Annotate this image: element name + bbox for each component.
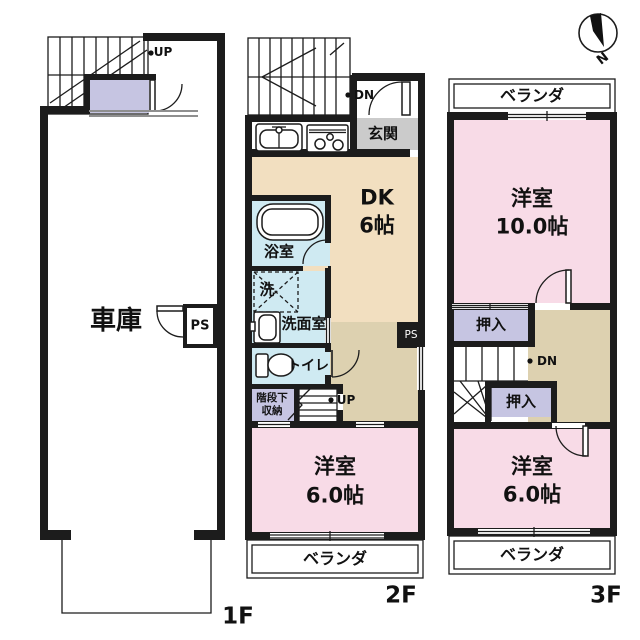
floor2-label: 2F: [385, 585, 417, 608]
door-swing-arc: [155, 84, 182, 111]
garage-label: 車庫: [90, 308, 142, 334]
closet1-label: 押入: [476, 318, 506, 333]
floor3-label: 3F: [590, 585, 622, 608]
entrance-label: 玄関: [368, 127, 398, 142]
kitchen-sink-icon: [256, 124, 302, 151]
understair-storage-label-line2: 収納: [262, 406, 283, 417]
closet2-label: 押入: [506, 395, 536, 410]
floor1-label: 1F: [222, 606, 254, 629]
floor3-veranda-bottom-label: ベランダ: [500, 547, 564, 563]
laundry-label: 洗: [259, 283, 274, 298]
floor3-veranda-top-label: ベランダ: [500, 88, 564, 104]
floor2-bedroom-label-line1: 洋室: [314, 457, 356, 478]
bath-label: 浴室: [264, 245, 294, 260]
floor3-bedroom-large-label-line1: 洋室: [511, 189, 553, 210]
dk-label-line2: 6帖: [359, 216, 395, 237]
floor3-bedroom-small-label-line1: 洋室: [511, 457, 553, 478]
floor1-up-label: UP: [154, 46, 173, 58]
door-leaf: [150, 80, 155, 111]
door-leaf: [157, 306, 183, 311]
toilet-label: トイレ: [287, 359, 329, 373]
washroom-label: 洗面室: [281, 317, 326, 332]
door-leaf: [583, 426, 588, 456]
stove-icon: [307, 125, 348, 152]
floor3-bedroom-large: [454, 120, 610, 303]
floor2-ps-label: PS: [405, 330, 418, 341]
floor3-dn-label: DN: [537, 355, 557, 367]
understair-storage-label-line1: 階段下: [256, 393, 288, 404]
floor2-bedroom: [252, 428, 418, 532]
floor2-up-label: UP: [337, 394, 356, 406]
floor3-bedroom-large-label-line2: 10.0帖: [496, 217, 569, 238]
door-swing-arc: [157, 311, 183, 337]
floor1-understair-closet: [89, 79, 149, 113]
floor2-dn-label: DN: [354, 89, 374, 101]
compass-icon: [579, 13, 617, 52]
floor1-ps-label: PS: [191, 320, 210, 333]
entry-door-leaf: [402, 82, 410, 115]
dk-label-line1: DK: [360, 188, 394, 209]
floor3-bedroom-small-label-line2: 6.0帖: [503, 485, 561, 506]
bathtub-icon: [257, 204, 323, 240]
floor2-veranda-label: ベランダ: [303, 551, 367, 567]
floor2-bedroom-label-line2: 6.0帖: [306, 486, 364, 507]
floor-plan-page: UP 車庫 PS 1F DN 玄関 DK 6帖 浴室 洗 洗面室 トイレ 階段下…: [0, 0, 640, 640]
washbasin-icon: [250, 312, 280, 343]
door-leaf: [566, 270, 571, 303]
